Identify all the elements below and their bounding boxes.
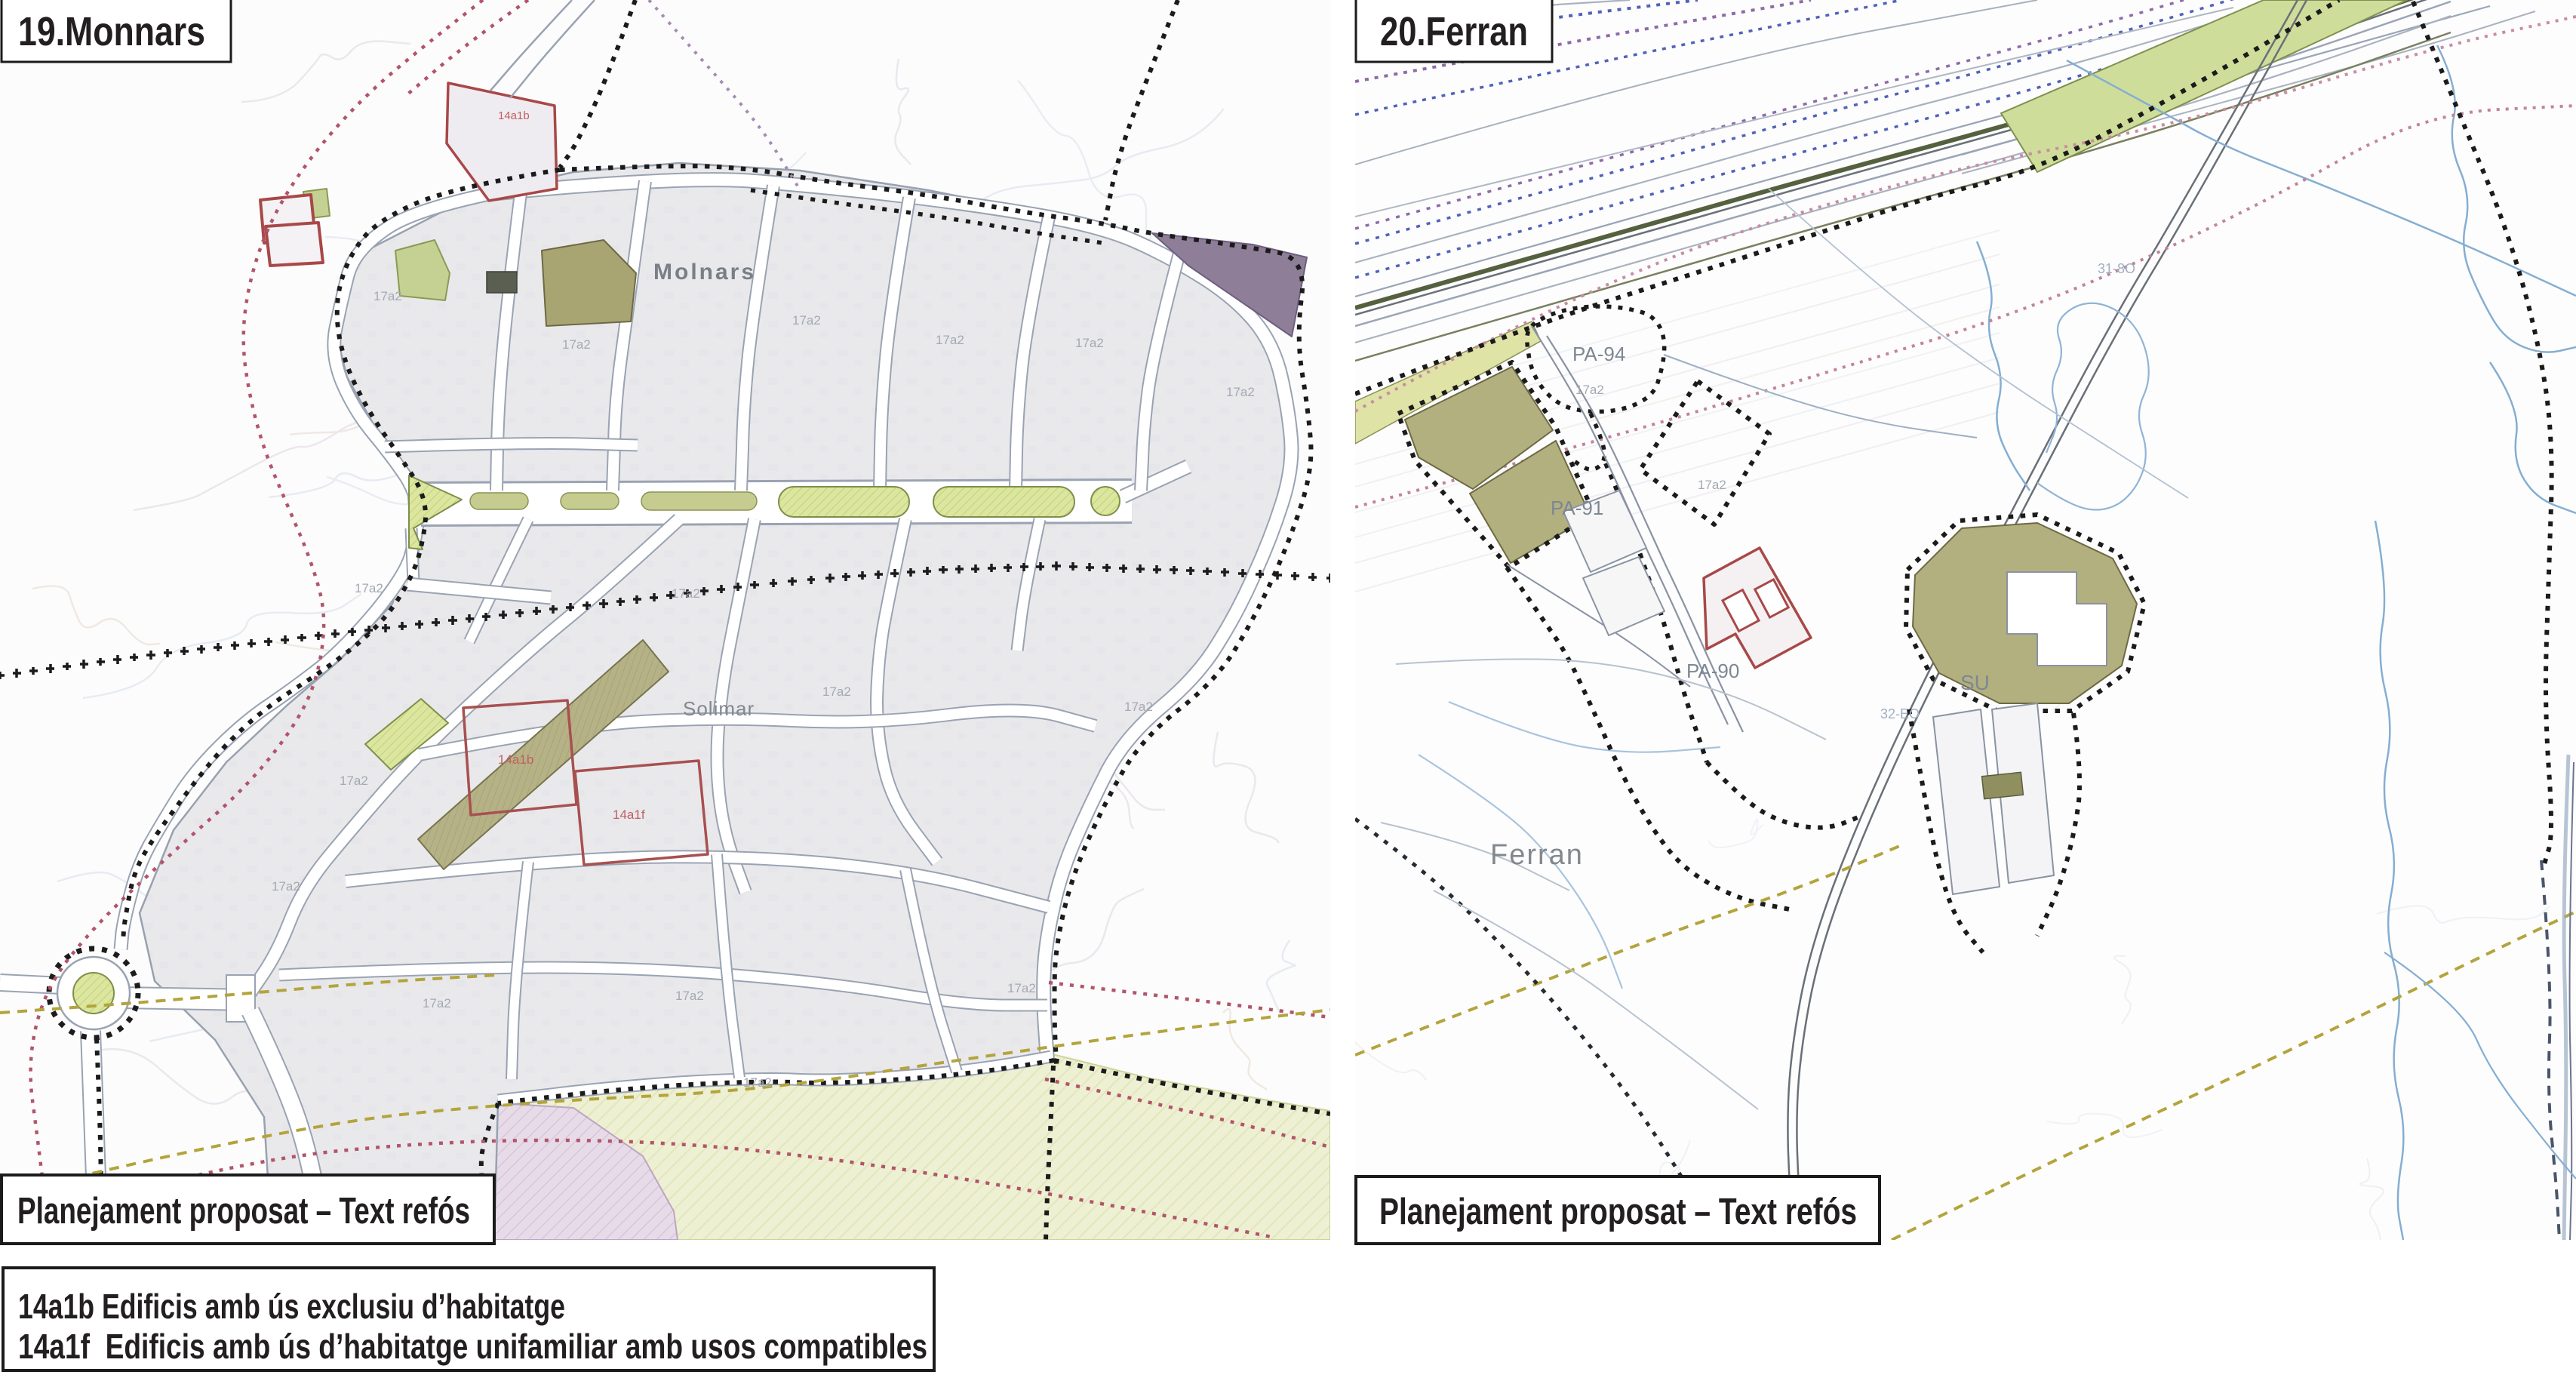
svg-text:32-EO: 32-EO (1880, 706, 1920, 721)
svg-text:17a2: 17a2 (1575, 383, 1604, 397)
svg-text:17a2: 17a2 (340, 774, 368, 788)
svg-text:14a1b Edificis amb ús exclusiu: 14a1b Edificis amb ús exclusiu d’habitat… (18, 1287, 565, 1326)
svg-text:17a2: 17a2 (822, 684, 851, 699)
svg-text:17a2: 17a2 (562, 337, 591, 352)
svg-text:Molnars: Molnars (653, 260, 756, 285)
svg-text:17a2: 17a2 (1226, 385, 1255, 399)
svg-text:17a2: 17a2 (373, 289, 402, 303)
svg-text:17a2: 17a2 (675, 989, 704, 1003)
svg-text:Planejament proposat – Text re: Planejament proposat – Text refós (17, 1191, 470, 1232)
svg-text:17a2: 17a2 (1698, 478, 1726, 492)
svg-text:17a2: 17a2 (423, 996, 451, 1010)
svg-text:31-8O: 31-8O (2098, 261, 2135, 276)
svg-text:Ferran: Ferran (1490, 839, 1584, 871)
svg-text:17a2: 17a2 (1075, 336, 1104, 350)
svg-text:20.Ferran: 20.Ferran (1380, 9, 1528, 54)
svg-text:17a2: 17a2 (743, 1075, 772, 1090)
svg-text:PA-94: PA-94 (1572, 343, 1625, 365)
svg-text:PA-90: PA-90 (1686, 660, 1739, 682)
svg-text:14a1f: 14a1f (613, 807, 645, 822)
svg-text:17a2: 17a2 (672, 586, 700, 601)
svg-text:14a1f Edificis amb ús d’habit: 14a1f Edificis amb ús d’habitatge unifam… (18, 1327, 927, 1366)
svg-text:17a2: 17a2 (1124, 700, 1153, 714)
svg-text:17a2: 17a2 (272, 879, 300, 894)
svg-text:17a2: 17a2 (792, 313, 821, 328)
svg-text:17a2: 17a2 (355, 581, 383, 595)
svg-text:Solimar: Solimar (683, 697, 755, 720)
svg-text:PA-91: PA-91 (1551, 497, 1603, 519)
svg-text:17a2: 17a2 (936, 333, 964, 347)
svg-text:SU: SU (1960, 671, 1990, 694)
svg-text:14a1b: 14a1b (498, 752, 533, 767)
svg-text:17a2: 17a2 (1007, 981, 1036, 995)
svg-text:14a1b: 14a1b (498, 109, 530, 122)
svg-text:Planejament proposat – Text re: Planejament proposat – Text refós (1379, 1192, 1857, 1232)
svg-text:19.Monnars: 19.Monnars (18, 9, 205, 54)
